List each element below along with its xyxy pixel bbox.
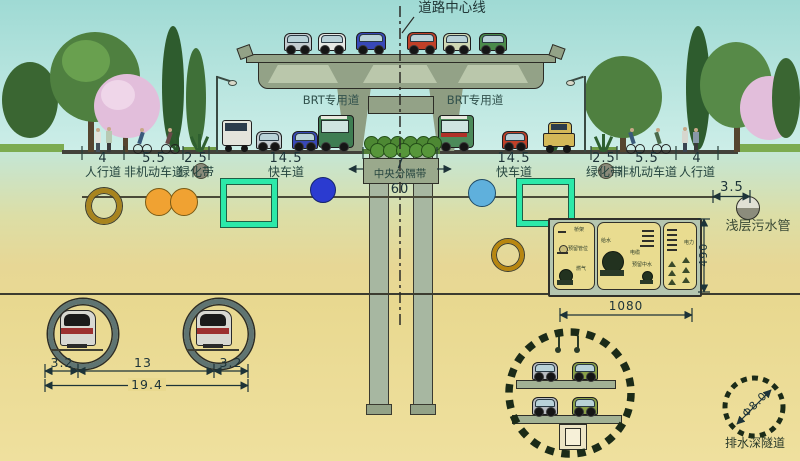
girder-cell [268, 65, 338, 83]
dim-green-left: 2.5 [171, 152, 221, 166]
truck-wheel [241, 145, 248, 152]
car-windshield [446, 35, 468, 43]
viaduct-car [479, 33, 507, 55]
pedestrian-body [95, 132, 101, 143]
train-red-band [197, 328, 229, 334]
tunnel-width-label: 1080 [599, 300, 653, 313]
cable-tray [667, 234, 677, 236]
grass-strip-left [0, 144, 64, 152]
car-windshield [575, 364, 595, 372]
car-wheel [459, 45, 469, 55]
pedestrian-body [682, 131, 688, 143]
bus-windshield [441, 120, 469, 133]
pipe-pedestal [600, 270, 624, 276]
pipe-ring-left [86, 188, 122, 224]
cyclist-head [656, 128, 660, 132]
box-truck [222, 120, 252, 152]
car-wheel [546, 407, 556, 417]
car-wheel [409, 45, 419, 55]
water-compartment: 给水 电缆 预留中水 [597, 222, 661, 290]
viaduct-car [407, 32, 437, 55]
tunnel-car [532, 362, 558, 382]
gas-compartment-label-top: 桥架 [574, 228, 584, 233]
metro-train [60, 310, 96, 352]
light-pole [584, 76, 586, 152]
road-cross-section-diagram: 桥架 预留管位 燃气 给水 电缆 预留中水 电力 [0, 0, 800, 461]
poplar-tree [186, 48, 206, 148]
cable-tray [667, 239, 677, 241]
cable-tray [642, 230, 654, 232]
metro-dim-center: 13 [130, 356, 156, 369]
bus-wheel [321, 142, 331, 152]
power-compartment: 电力 [663, 222, 697, 290]
gas-compartment: 桥架 预留管位 燃气 [553, 222, 595, 290]
dim-sidewalk-right: 4 [672, 152, 722, 166]
road-car [502, 131, 528, 152]
girder-cell [458, 65, 528, 83]
power-compartment-label: 电力 [684, 241, 694, 246]
centerline-label: 道路中心线 [406, 1, 498, 15]
cable-support [682, 267, 690, 273]
car-wheel [258, 142, 268, 152]
car-wheel [306, 142, 316, 152]
tunnel-lower-deck [512, 415, 622, 424]
car-windshield [575, 399, 595, 407]
car-wheel [495, 45, 505, 55]
train-bogie [67, 344, 87, 348]
car-wheel [374, 45, 384, 55]
cable-support [682, 257, 690, 263]
label-roadway-left: 快车道 [262, 166, 310, 179]
metro-train [196, 310, 232, 352]
track-line [187, 349, 239, 351]
light-pole [216, 76, 218, 152]
car-windshield [295, 133, 315, 141]
road-car [292, 131, 318, 152]
cable-tray [640, 245, 654, 247]
pickup-wheel [563, 145, 571, 153]
train-bogie [203, 344, 223, 348]
train-red-band [61, 328, 93, 334]
car-wheel [534, 407, 544, 417]
label-green-left: 绿化带 [176, 166, 216, 179]
car-windshield [410, 34, 434, 42]
car-windshield [482, 35, 504, 43]
poplar-tree [162, 26, 184, 148]
car-wheel [534, 372, 544, 382]
car-wheel [445, 45, 455, 55]
car-wheel [334, 45, 344, 55]
bus-wheel [441, 142, 451, 152]
lamp-head [566, 80, 575, 86]
viaduct-car [284, 33, 312, 55]
label-roadway-right: 快车道 [490, 166, 538, 179]
road-car [256, 131, 282, 152]
pickup-wheel [546, 145, 554, 153]
cable-support [668, 270, 676, 276]
tunnel-fixture-head [574, 347, 580, 353]
tunnel-duct-inner [565, 428, 581, 446]
bush [421, 143, 436, 158]
pedestrian-body [693, 132, 699, 143]
cyclist-head [168, 128, 172, 132]
gas-compartment-label-mid: 预留管位 [568, 247, 588, 252]
dim-sidewalk-left: 4 [78, 152, 128, 166]
bus-route-sign [441, 116, 467, 119]
track-line [51, 349, 103, 351]
cable-tray [642, 240, 654, 242]
car-wheel [358, 45, 368, 55]
brt-bus-left [318, 115, 352, 152]
cyclist-head [140, 128, 144, 132]
dim-bike-right: 5.5 [622, 152, 672, 166]
pile-cap-right [410, 404, 436, 415]
pedestrian-body [106, 131, 112, 143]
grass-strip-right [736, 144, 800, 152]
box-culvert-left [221, 179, 277, 227]
water-compartment-label-top: 给水 [601, 239, 611, 244]
brt-label-left: BRT专用道 [298, 94, 364, 106]
train-windshield [200, 314, 226, 326]
tunnel-car [572, 362, 598, 382]
pipe-pedestal [557, 280, 573, 285]
deep-tunnel-name: 排水深隧道 [714, 437, 796, 450]
pile-cap-left [366, 404, 392, 415]
train-windshield [64, 314, 90, 326]
bus-wheel [339, 142, 349, 152]
bus-route-sign [321, 116, 347, 119]
truck-wheel [225, 145, 232, 152]
brt-bus-right [438, 115, 472, 152]
bus-red-stripe [441, 133, 467, 137]
car-wheel [546, 372, 556, 382]
tunnel-upper-deck [516, 380, 616, 389]
pipe-pedestal [640, 280, 653, 284]
car-windshield [287, 35, 309, 43]
car-windshield [259, 133, 279, 141]
car-wheel [300, 45, 310, 55]
tree-canopy [772, 58, 800, 138]
tunnel-car [532, 397, 558, 417]
car-windshield [535, 399, 555, 407]
car-wheel [481, 45, 491, 55]
girder-cell [363, 65, 437, 83]
tree-canopy [584, 56, 662, 138]
tree-canopy-highlight [62, 40, 110, 82]
pipe-blue-light [468, 179, 496, 207]
viaduct-crossbeam [368, 96, 434, 114]
cable-tray [667, 229, 677, 231]
pipe-orange [145, 188, 173, 216]
car-wheel [425, 45, 435, 55]
bracket-bar [558, 231, 566, 233]
car-wheel [586, 372, 596, 382]
sewer-pipe-symbol [736, 196, 760, 220]
pipe-blue-dark [310, 177, 336, 203]
cable-support [682, 277, 690, 283]
cable-support [668, 261, 676, 267]
viaduct-car [356, 32, 386, 55]
brt-label-right: BRT专用道 [442, 94, 508, 106]
metro-dim-right: 3.2 [215, 356, 247, 369]
bus-wheel [459, 142, 469, 152]
viaduct-deck [246, 54, 556, 63]
cable-tray [642, 235, 654, 237]
water-compartment-label-mid: 电缆 [630, 251, 640, 256]
tunnel-fixture-head [555, 347, 561, 353]
sewer-dim-label: 3.5 [713, 181, 751, 195]
sewer-name-label: 浅层污水管 [716, 220, 800, 234]
median-total-width: 60 [375, 183, 425, 197]
cherry-tree-highlight [101, 80, 135, 110]
car-wheel [574, 407, 584, 417]
car-wheel [574, 372, 584, 382]
viaduct-car [443, 33, 471, 55]
car-wheel [586, 407, 596, 417]
car-wheel [286, 45, 296, 55]
lamp-head [228, 80, 237, 86]
car-windshield [505, 133, 525, 141]
pickup-windshield [551, 124, 567, 130]
viaduct-car [318, 33, 346, 55]
pipe-ring-center [492, 239, 524, 271]
cable-tray [667, 244, 677, 246]
pickup-truck [543, 122, 575, 152]
bus-windshield [321, 120, 349, 133]
label-median: 中央分隔带 [361, 169, 439, 180]
dim-roadway-left: 14.5 [261, 152, 311, 166]
gas-compartment-label-bottom: 燃气 [576, 267, 586, 272]
pipe-orange [170, 188, 198, 216]
tunnel-height-label: 490 [698, 237, 710, 273]
pipe-stand [557, 252, 568, 254]
tunnel-car [572, 397, 598, 417]
car-windshield [321, 35, 343, 43]
soil-lower-band [0, 294, 800, 461]
water-compartment-label-bottom: 预留中水 [632, 263, 652, 268]
metro-dim-total: 19.4 [128, 378, 166, 391]
pedestrian-legs [683, 143, 687, 152]
truck-windshield [225, 123, 247, 131]
label-sidewalk-right: 人行道 [659, 166, 735, 179]
cable-tray [667, 249, 677, 251]
dim-roadway-right: 14.5 [489, 152, 539, 166]
car-wheel [320, 45, 330, 55]
car-windshield [359, 34, 383, 42]
cable-support [668, 279, 676, 285]
metro-dim-left: 3.2 [46, 356, 78, 369]
cyclist-head [630, 128, 634, 132]
car-windshield [535, 364, 555, 372]
